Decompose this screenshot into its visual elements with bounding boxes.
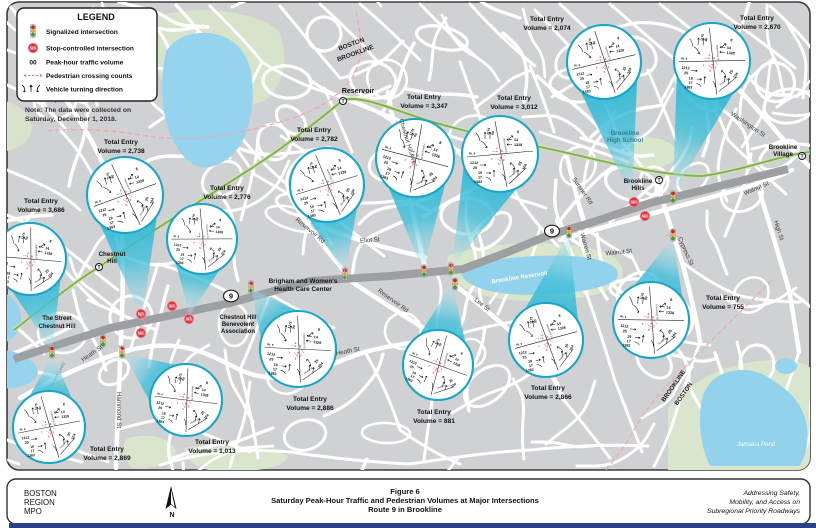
svg-text:Total Entry: Total Entry	[706, 295, 740, 302]
svg-text:Reservoir: Reservoir	[342, 88, 375, 95]
svg-text:Brookline: Brookline	[769, 144, 798, 151]
svg-text:Hill: Hill	[107, 258, 117, 265]
svg-text:Brookline: Brookline	[611, 130, 640, 137]
svg-text:Volume = 2,866: Volume = 2,866	[524, 394, 572, 401]
svg-text:Volume = 3,012: Volume = 3,012	[490, 104, 538, 111]
svg-text:Total Entry: Total Entry	[90, 446, 124, 453]
svg-text:Signalized intersection: Signalized intersection	[46, 29, 118, 36]
svg-text:Subregional Priority Roadways: Subregional Priority Roadways	[707, 508, 801, 515]
svg-text:Total Entry: Total Entry	[104, 139, 138, 146]
svg-text:Chestnut Hill: Chestnut Hill	[39, 324, 76, 330]
svg-text:Volume = 3,347: Volume = 3,347	[400, 103, 448, 110]
svg-text:Brookline: Brookline	[624, 178, 653, 185]
svg-text:Volume = 755: Volume = 755	[702, 304, 744, 311]
svg-text:Volume = 2,776: Volume = 2,776	[203, 194, 251, 201]
svg-text:Vehicle turning direction: Vehicle turning direction	[46, 87, 123, 94]
svg-text:Addressing Safety,: Addressing Safety,	[742, 490, 800, 497]
svg-text:N: N	[169, 512, 174, 519]
svg-text:Volume = 1,013: Volume = 1,013	[188, 448, 236, 455]
svg-text:LEGEND: LEGEND	[77, 12, 115, 22]
svg-text:Total Entry: Total Entry	[531, 385, 565, 392]
svg-text:Volume = 3,686: Volume = 3,686	[17, 207, 65, 214]
svg-text:Total Entry: Total Entry	[497, 95, 531, 102]
svg-text:Volume = 2,869: Volume = 2,869	[83, 455, 131, 462]
svg-text:Total Entry: Total Entry	[293, 396, 327, 403]
svg-text:Total Entry: Total Entry	[530, 16, 564, 23]
svg-text:Hammond St: Hammond St	[115, 392, 122, 428]
svg-text:00: 00	[29, 60, 37, 67]
svg-text:Saturday, December 1, 2018.: Saturday, December 1, 2018.	[25, 116, 117, 123]
svg-text:Total Entry: Total Entry	[407, 94, 441, 101]
svg-text:Pedestrian crossing counts: Pedestrian crossing counts	[46, 73, 133, 80]
svg-text:Chestnut: Chestnut	[99, 251, 126, 258]
svg-text:Total Entry: Total Entry	[210, 185, 244, 192]
svg-text:Note: The data were collected: Note: The data were collected on	[25, 107, 131, 114]
svg-text:Total Entry: Total Entry	[417, 409, 451, 416]
svg-text:Volume = 2,886: Volume = 2,886	[286, 405, 334, 412]
svg-text:9: 9	[550, 227, 554, 236]
svg-text:Brigham and Women's: Brigham and Women's	[269, 278, 338, 285]
svg-text:Association: Association	[221, 329, 255, 335]
svg-text:MPO: MPO	[24, 507, 42, 516]
svg-text:Health Care Center: Health Care Center	[274, 286, 332, 293]
svg-text:High School: High School	[607, 137, 643, 144]
svg-text:Saturday Peak-Hour Traffic and: Saturday Peak-Hour Traffic and Pedestria…	[271, 496, 539, 505]
svg-text:Village: Village	[773, 151, 793, 158]
svg-text:Volume = 2,670: Volume = 2,670	[733, 24, 781, 31]
svg-text:Volume = 2,782: Volume = 2,782	[290, 136, 338, 143]
svg-text:9: 9	[229, 292, 233, 301]
svg-text:Jamaica Pond: Jamaica Pond	[736, 442, 776, 448]
svg-text:Peak-hour traffic volume: Peak-hour traffic volume	[46, 60, 124, 67]
svg-text:Chestnut Hill: Chestnut Hill	[220, 315, 257, 321]
svg-text:BOSTON: BOSTON	[24, 489, 57, 498]
svg-text:REGION: REGION	[24, 498, 55, 507]
svg-text:Total Entry: Total Entry	[740, 15, 774, 22]
svg-text:Volume = 881: Volume = 881	[413, 418, 455, 425]
svg-text:Figure 6: Figure 6	[390, 487, 420, 496]
svg-text:Hills: Hills	[631, 185, 645, 192]
svg-text:Volume = 2,074: Volume = 2,074	[523, 25, 571, 32]
svg-text:Volume = 2,738: Volume = 2,738	[97, 148, 145, 155]
svg-text:Total Entry: Total Entry	[297, 127, 331, 134]
svg-text:Benevolent: Benevolent	[222, 322, 254, 328]
svg-text:Route 9 in Brookline: Route 9 in Brookline	[368, 505, 442, 514]
svg-text:Total Entry: Total Entry	[24, 198, 58, 205]
svg-text:Total Entry: Total Entry	[195, 439, 229, 446]
svg-text:The Street: The Street	[42, 316, 71, 322]
svg-text:Mobility, and Access on: Mobility, and Access on	[729, 499, 800, 506]
svg-text:Stop-controlled intersection: Stop-controlled intersection	[46, 46, 134, 53]
